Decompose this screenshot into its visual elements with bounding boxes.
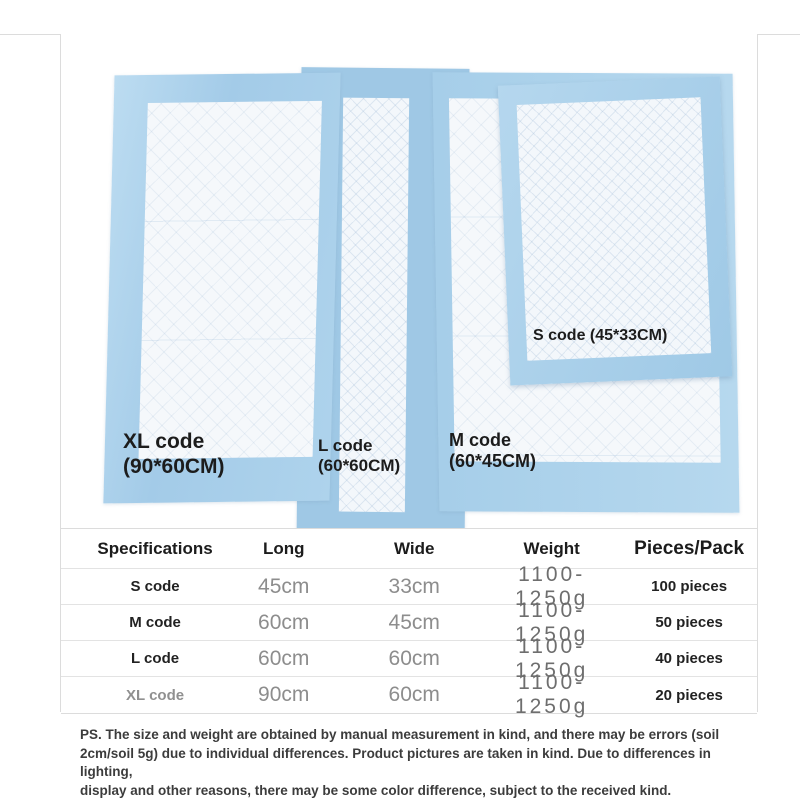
- long-cell: 90cm: [221, 683, 346, 707]
- label-m-code: M code: [449, 430, 536, 451]
- ps-disclaimer: PS. The size and weight are obtained by …: [80, 726, 756, 800]
- spec-table: Specifications Long Wide Weight Pieces/P…: [61, 528, 757, 714]
- label-s-size: S code (45*33CM): [533, 327, 667, 346]
- weight-cell: 1100-1250g: [482, 671, 621, 719]
- pieces-cell: 20 pieces: [621, 687, 757, 704]
- label-l-size: L code (60*60CM): [318, 436, 400, 476]
- content-frame: XL code (90*60CM) L code (60*60CM) M cod…: [60, 34, 758, 712]
- wide-cell: 45cm: [346, 611, 482, 635]
- ps-line-1: PS. The size and weight are obtained by …: [80, 726, 756, 745]
- ps-line-3: display and other reasons, there may be …: [80, 782, 756, 800]
- table-row-xl-code: XL code 90cm 60cm 1100-1250g 20 pieces: [61, 677, 757, 713]
- column-header-wide: Wide: [346, 539, 482, 559]
- table-row-s-code: S code 45cm 33cm 1100-1250g 100 pieces: [61, 569, 757, 605]
- spec-cell: M code: [61, 614, 221, 631]
- pieces-cell: 50 pieces: [621, 614, 757, 631]
- pieces-cell: 40 pieces: [621, 650, 757, 667]
- wide-cell: 33cm: [346, 575, 482, 599]
- ps-line-2: 2cm/soil 5g) due to individual differenc…: [80, 745, 756, 782]
- column-header-long: Long: [221, 539, 346, 559]
- long-cell: 60cm: [221, 611, 346, 635]
- table-header-row: Specifications Long Wide Weight Pieces/P…: [61, 529, 757, 569]
- wide-cell: 60cm: [346, 647, 482, 671]
- spec-cell: L code: [61, 650, 221, 667]
- label-xl-code: XL code: [123, 430, 225, 455]
- table-row-l-code: L code 60cm 60cm 1100-1250g 40 pieces: [61, 641, 757, 677]
- pieces-cell: 100 pieces: [621, 578, 757, 595]
- table-row-m-code: M code 60cm 45cm 1100-1250g 50 pieces: [61, 605, 757, 641]
- spec-cell: S code: [61, 578, 221, 595]
- label-l-dimensions: (60*60CM): [318, 456, 400, 476]
- wide-cell: 60cm: [346, 683, 482, 707]
- label-xl-size: XL code (90*60CM): [123, 430, 225, 480]
- label-s-code-and-dimensions: S code (45*33CM): [533, 327, 667, 346]
- pad-xl-absorbent-core: [139, 101, 322, 459]
- long-cell: 45cm: [221, 575, 346, 599]
- column-header-pieces-pack: Pieces/Pack: [621, 538, 757, 560]
- pad-s-absorbent-core: [517, 97, 712, 360]
- label-m-dimensions: (60*45CM): [449, 451, 536, 472]
- label-l-code: L code: [318, 436, 400, 456]
- column-header-weight: Weight: [482, 539, 621, 559]
- spec-cell: XL code: [61, 687, 221, 704]
- label-m-size: M code (60*45CM): [449, 430, 536, 472]
- long-cell: 60cm: [221, 647, 346, 671]
- column-header-specifications: Specifications: [61, 539, 221, 559]
- product-spec-sheet: XL code (90*60CM) L code (60*60CM) M cod…: [0, 0, 800, 800]
- label-xl-dimensions: (90*60CM): [123, 455, 225, 480]
- product-photo: XL code (90*60CM) L code (60*60CM) M cod…: [61, 34, 757, 528]
